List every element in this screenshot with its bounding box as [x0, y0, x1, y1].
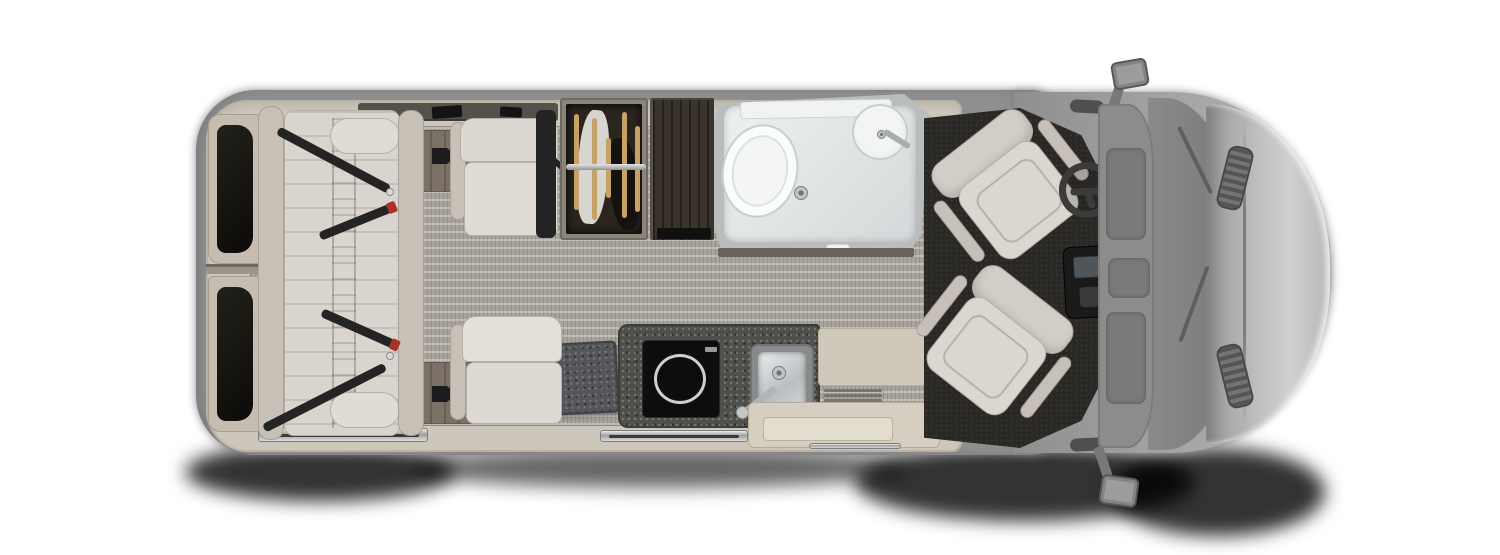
entry-step: [748, 402, 940, 448]
entry-step-sill: [809, 443, 901, 449]
bench-front-rail: [398, 110, 424, 436]
wardrobe-rail: [566, 164, 646, 170]
rear-door-window-top: [217, 125, 253, 253]
bath-threshold: [718, 248, 914, 257]
tall-cabinet: [650, 98, 714, 240]
side-mirror-bottom: [1098, 474, 1140, 509]
door-sill-mid-groove: [609, 435, 739, 438]
belt-anchor-dot-bottom: [386, 352, 394, 360]
hood: [1206, 104, 1330, 444]
ground-shadow-nose: [1110, 448, 1325, 536]
corner-sink-bowl: [852, 104, 908, 160]
hanger-1: [574, 114, 579, 210]
belt-pillar: [536, 110, 556, 238]
dash-vent-top: [1106, 148, 1146, 240]
door-sill-mid: [600, 430, 748, 442]
wardrobe-with-hangers: [560, 98, 648, 240]
bath-floor-drain: [794, 186, 808, 200]
cooktop-badge: [705, 347, 717, 352]
floorplan-stage: [0, 0, 1500, 555]
cooktop-burner-ring: [654, 354, 706, 404]
vent-slat-1: [824, 389, 882, 392]
lounge-bottom-cushion: [466, 362, 562, 424]
entry-step-tread: [763, 417, 893, 441]
lounge-bottom-backrest: [462, 316, 562, 362]
rear-door-divider: [206, 264, 264, 274]
sink-drain: [772, 366, 786, 380]
toilet-seat-inner: [725, 130, 795, 212]
lounge-seat-bottom: [448, 316, 564, 430]
wet-bath: [714, 94, 930, 256]
rear-door-window-bottom: [217, 287, 253, 421]
cabinet-kick: [657, 228, 711, 239]
bench-bolster-top: [330, 118, 400, 154]
rear-bench-sofa: [258, 106, 424, 440]
rear-doors: [206, 112, 264, 434]
bench-bolster-bottom: [330, 392, 400, 428]
floor-vent: [822, 388, 884, 402]
belt-anchor-dot-top: [386, 188, 394, 196]
rear-door-frame-top: [208, 114, 262, 264]
rear-door-frame-bottom: [208, 276, 262, 432]
dashboard: [1098, 104, 1154, 448]
induction-cooktop: [642, 340, 720, 418]
side-mirror-top: [1110, 57, 1150, 91]
vent-slat-2: [824, 394, 882, 397]
bench-backrest: [258, 106, 284, 440]
dash-tray: [1108, 258, 1150, 298]
dash-vent-bottom: [1106, 312, 1146, 404]
